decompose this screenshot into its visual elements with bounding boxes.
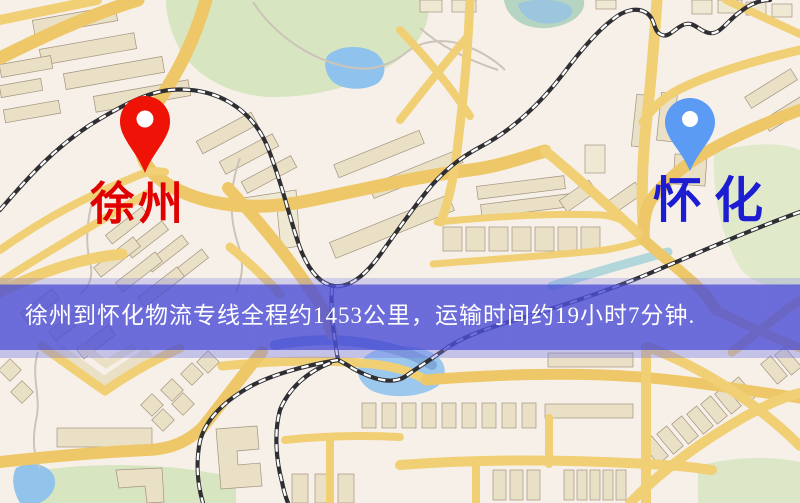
route-info-banner: 徐州到怀化物流专线全程约1453公里，运输时间约19小时7分钟. [0, 278, 800, 358]
map-container: 徐州 怀化 徐州到怀化物流专线全程约1453公里，运输时间约19小时7分钟. [0, 0, 800, 503]
destination-city-label: 怀化 [653, 173, 775, 228]
origin-city-label: 徐州 [89, 179, 186, 229]
map-canvas: 徐州 怀化 [0, 0, 800, 503]
route-info-text: 徐州到怀化物流专线全程约1453公里，运输时间约19小时7分钟. [25, 296, 695, 330]
